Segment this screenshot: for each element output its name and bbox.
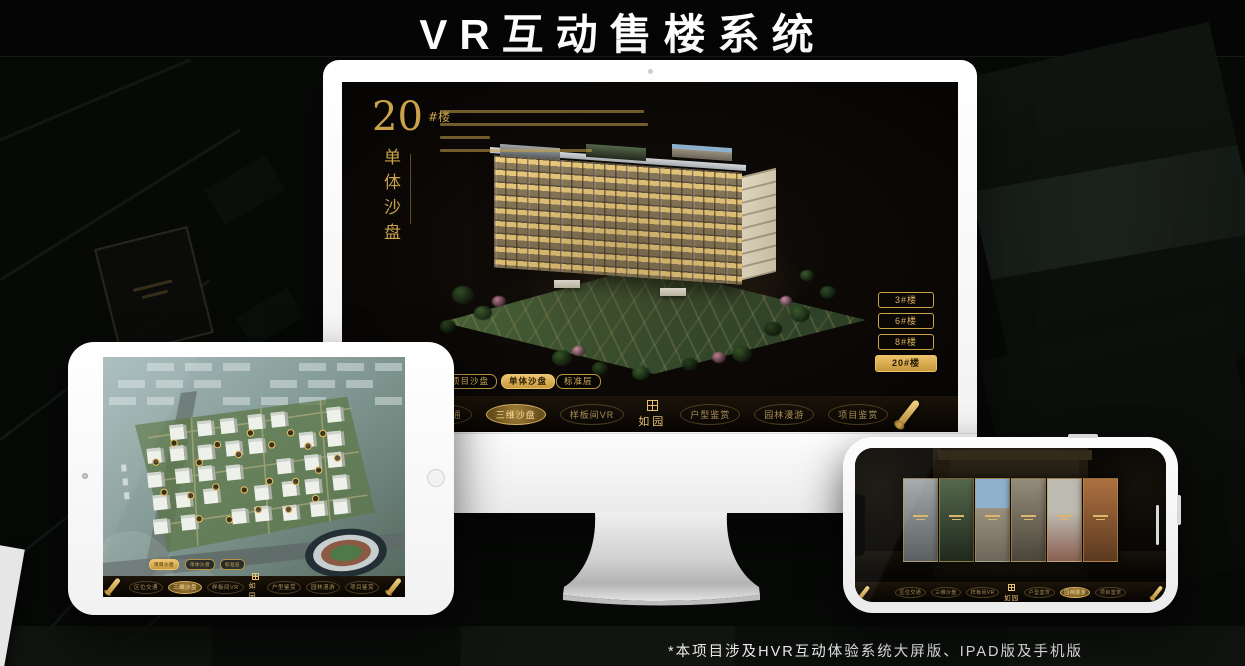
nav-item-floorplan[interactable]: 户型鉴赏 (267, 581, 301, 594)
stage: VR互动售楼系统 *本项目涉及HVR互动体验系统大屏版、IPAD版及手机版 20 (0, 0, 1245, 666)
text-line (440, 136, 490, 139)
scene-card[interactable] (903, 478, 938, 562)
brand-logo: 如园 (249, 573, 262, 597)
scene-card[interactable] (1011, 478, 1046, 562)
nav-item-garden-tour[interactable]: 园林漫游 (306, 581, 340, 594)
phone-power-button[interactable] (1177, 495, 1181, 525)
phone-navbar: 区位交通 三维沙盘 样板间VR 如园 户型鉴赏 园林漫游 项目鉴赏 (855, 582, 1166, 602)
tablet-navbar: 区位交通 三维沙盘 样板间VR 如园 户型鉴赏 园林漫游 项目鉴赏 (103, 576, 405, 597)
block-subtitle: 单体沙盘 (378, 148, 403, 248)
building-button-8[interactable]: 8#楼 (878, 334, 934, 350)
seal-icon (1008, 584, 1015, 591)
subtab-standard-floor[interactable]: 标准层 (556, 374, 601, 389)
scene-card[interactable] (975, 478, 1010, 562)
nav-item-3d-sandbox[interactable]: 三维沙盘 (168, 581, 202, 594)
nav-item-showroom-vr[interactable]: 样板间VR (966, 587, 999, 598)
aerial-masterplan (103, 357, 405, 597)
divider (410, 154, 411, 224)
text-line (440, 149, 592, 152)
webcam-icon (648, 69, 653, 74)
brand-logo-text: 如园 (1004, 592, 1019, 602)
subtab-single-sandbox[interactable]: 单体沙盘 (501, 374, 555, 389)
nav-item-traffic[interactable]: 区位交通 (129, 581, 163, 594)
scene-card[interactable] (1083, 478, 1118, 562)
brand-logo: 如园 (638, 400, 666, 429)
river-band (954, 136, 1245, 284)
tablet-subtab-project-sandbox[interactable]: 项目沙盘 (149, 559, 179, 570)
phone-screen: 区位交通 三维沙盘 样板间VR 如园 户型鉴赏 园林漫游 项目鉴赏 (855, 448, 1166, 602)
nav-item-traffic[interactable]: 区位交通 (895, 587, 926, 598)
phone-device: 区位交通 三维沙盘 样板间VR 如园 户型鉴赏 园林漫游 项目鉴赏 (843, 437, 1178, 613)
tablet-subtab-single-sandbox[interactable]: 单体沙盘 (185, 559, 215, 570)
description-text (440, 110, 652, 162)
nav-item-floorplan[interactable]: 户型鉴赏 (1024, 587, 1055, 598)
text-line (440, 110, 644, 113)
tablet-device: 项目沙盘 单体沙盘 标准层 区位交通 三维沙盘 样板间VR 如园 户型鉴赏 园林… (68, 342, 454, 615)
nav-item-garden-tour[interactable]: 园林漫游 (1060, 587, 1091, 598)
phone-notch (855, 494, 865, 556)
seal-icon (647, 400, 658, 411)
phone-volume-button[interactable] (1068, 434, 1098, 438)
scene-card[interactable] (1047, 478, 1082, 562)
nav-item-project-view[interactable]: 项目鉴赏 (345, 581, 379, 594)
nav-item-project-view[interactable]: 项目鉴赏 (1095, 587, 1126, 598)
nav-item-showroom-vr[interactable]: 样板间VR (207, 581, 244, 594)
nav-item-3d-sandbox[interactable]: 三维沙盘 (486, 404, 546, 425)
nav-item-floorplan[interactable]: 户型鉴赏 (680, 404, 740, 425)
building-button-20[interactable]: 20#楼 (875, 355, 937, 372)
tablet-home-button[interactable] (427, 469, 445, 487)
block-number: 20 (372, 94, 423, 140)
nav-item-showroom-vr[interactable]: 样板间VR (560, 404, 625, 425)
tablet-screen: 项目沙盘 单体沙盘 标准层 区位交通 三维沙盘 样板间VR 如园 户型鉴赏 园林… (103, 357, 405, 597)
seal-icon (252, 573, 259, 580)
tablet-camera-icon (82, 473, 88, 479)
home-indicator[interactable] (1156, 505, 1159, 545)
nav-item-3d-sandbox[interactable]: 三维沙盘 (931, 587, 962, 598)
brand-logo-text: 如园 (249, 581, 262, 597)
text-line (440, 123, 648, 126)
page-title: VR互动售楼系统 (0, 1, 1245, 62)
nav-item-project-view[interactable]: 项目鉴赏 (828, 404, 888, 425)
footnote: *本项目涉及HVR互动体验系统大屏版、IPAD版及手机版 (668, 640, 1083, 661)
building-button-3[interactable]: 3#楼 (878, 292, 934, 308)
scene-card[interactable] (939, 478, 974, 562)
brand-logo-text: 如园 (638, 413, 666, 429)
brand-logo: 如园 (1004, 584, 1019, 602)
tablet-subtab-standard-floor[interactable]: 标准层 (220, 559, 245, 570)
nav-item-garden-tour[interactable]: 园林漫游 (754, 404, 814, 425)
building-button-6[interactable]: 6#楼 (878, 313, 934, 329)
